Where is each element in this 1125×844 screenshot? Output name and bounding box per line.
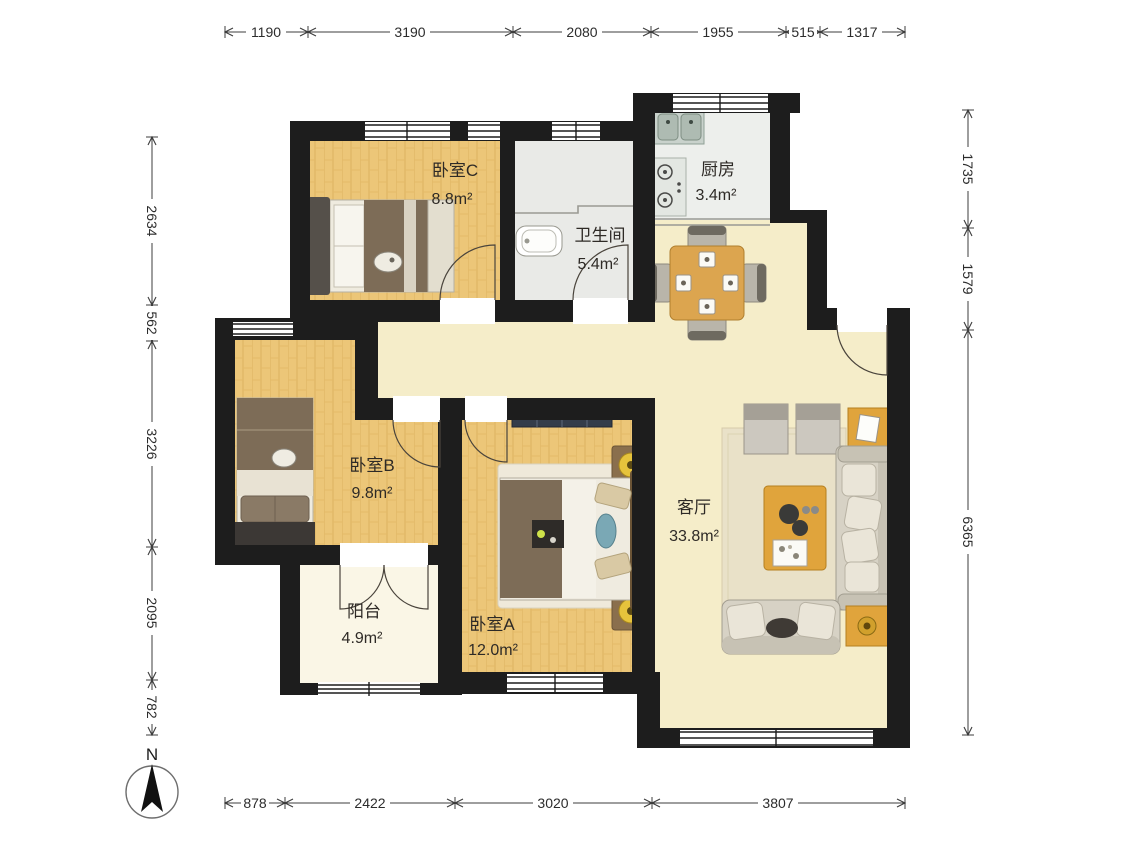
stove-icon <box>652 158 686 216</box>
dim-top-5: 515 <box>791 24 815 40</box>
corner-table-icon <box>848 408 892 452</box>
dim-left-1: 2634 <box>144 205 160 236</box>
window-bedroom-b <box>233 322 293 336</box>
dim-left-4: 2095 <box>144 597 160 628</box>
dim-right-2: 1579 <box>960 263 976 294</box>
room-area-living-room: 33.8m² <box>669 528 719 545</box>
dim-top-3: 2080 <box>566 24 597 40</box>
window-living-room <box>680 728 873 748</box>
floor-plan-page: 1190 3190 2080 1955 515 1317 2634 562 32… <box>0 0 1125 844</box>
window-bedroom-c-2 <box>468 122 500 140</box>
balcony-floor <box>300 565 438 683</box>
room-label-kitchen: 厨房 <box>701 160 735 179</box>
room-area-bedroom-c: 8.8m² <box>432 191 474 208</box>
window-bathroom <box>552 122 600 140</box>
dim-top-4: 1955 <box>702 24 733 40</box>
room-area-kitchen: 3.4m² <box>696 187 738 204</box>
dim-left-3: 3226 <box>144 428 160 459</box>
dim-top-2: 3190 <box>394 24 425 40</box>
north-compass-icon: N <box>126 745 178 818</box>
room-label-balcony: 阳台 <box>347 602 381 621</box>
room-label-living-room: 客厅 <box>677 498 711 517</box>
dim-right-1: 1735 <box>960 153 976 184</box>
dimension-chain-bottom: 878 2422 3020 3807 <box>225 795 905 811</box>
dim-bottom-4: 3807 <box>762 795 793 811</box>
bed-icon-bedroom-b <box>235 398 315 548</box>
dim-top-1: 1190 <box>251 24 281 40</box>
floor-plan: 1190 3190 2080 1955 515 1317 2634 562 32… <box>0 0 1125 844</box>
bathroom-floor <box>515 141 633 302</box>
dim-right-3: 6365 <box>960 516 976 547</box>
window-bedroom-c-1 <box>365 122 450 140</box>
dimension-chain-right: 1735 1579 6365 <box>959 110 977 735</box>
room-area-bedroom-a: 12.0m² <box>468 642 518 659</box>
window-bedroom-a <box>507 674 603 692</box>
dim-top-6: 1317 <box>846 24 877 40</box>
washbasin-icon <box>516 226 562 256</box>
room-label-bedroom-b: 卧室B <box>349 456 394 475</box>
dim-left-2: 562 <box>144 311 160 335</box>
dimension-chain-top: 1190 3190 2080 1955 515 1317 <box>225 24 905 40</box>
room-area-balcony: 4.9m² <box>342 630 384 647</box>
bed-icon-bedroom-a <box>498 446 652 630</box>
dim-left-5: 782 <box>144 695 160 719</box>
room-area-bedroom-b: 9.8m² <box>352 485 394 502</box>
room-label-bathroom: 卫生间 <box>575 226 626 245</box>
window-kitchen <box>673 94 768 112</box>
bed-icon-bedroom-c <box>304 197 454 295</box>
room-area-bathroom: 5.4m² <box>578 256 620 273</box>
coffee-table-icon <box>764 486 826 570</box>
dim-bottom-3: 3020 <box>537 795 568 811</box>
dimension-chain-left: 2634 562 3226 2095 782 <box>143 137 161 735</box>
compass-north-label: N <box>146 745 158 764</box>
loveseat-icon <box>722 600 840 654</box>
side-table-icon <box>846 606 888 646</box>
window-balcony <box>318 682 420 696</box>
room-label-bedroom-a: 卧室A <box>469 615 515 634</box>
room-label-bedroom-c: 卧室C <box>432 161 478 180</box>
dim-bottom-1: 878 <box>243 795 267 811</box>
dim-bottom-2: 2422 <box>354 795 385 811</box>
sink-icon <box>654 110 704 144</box>
